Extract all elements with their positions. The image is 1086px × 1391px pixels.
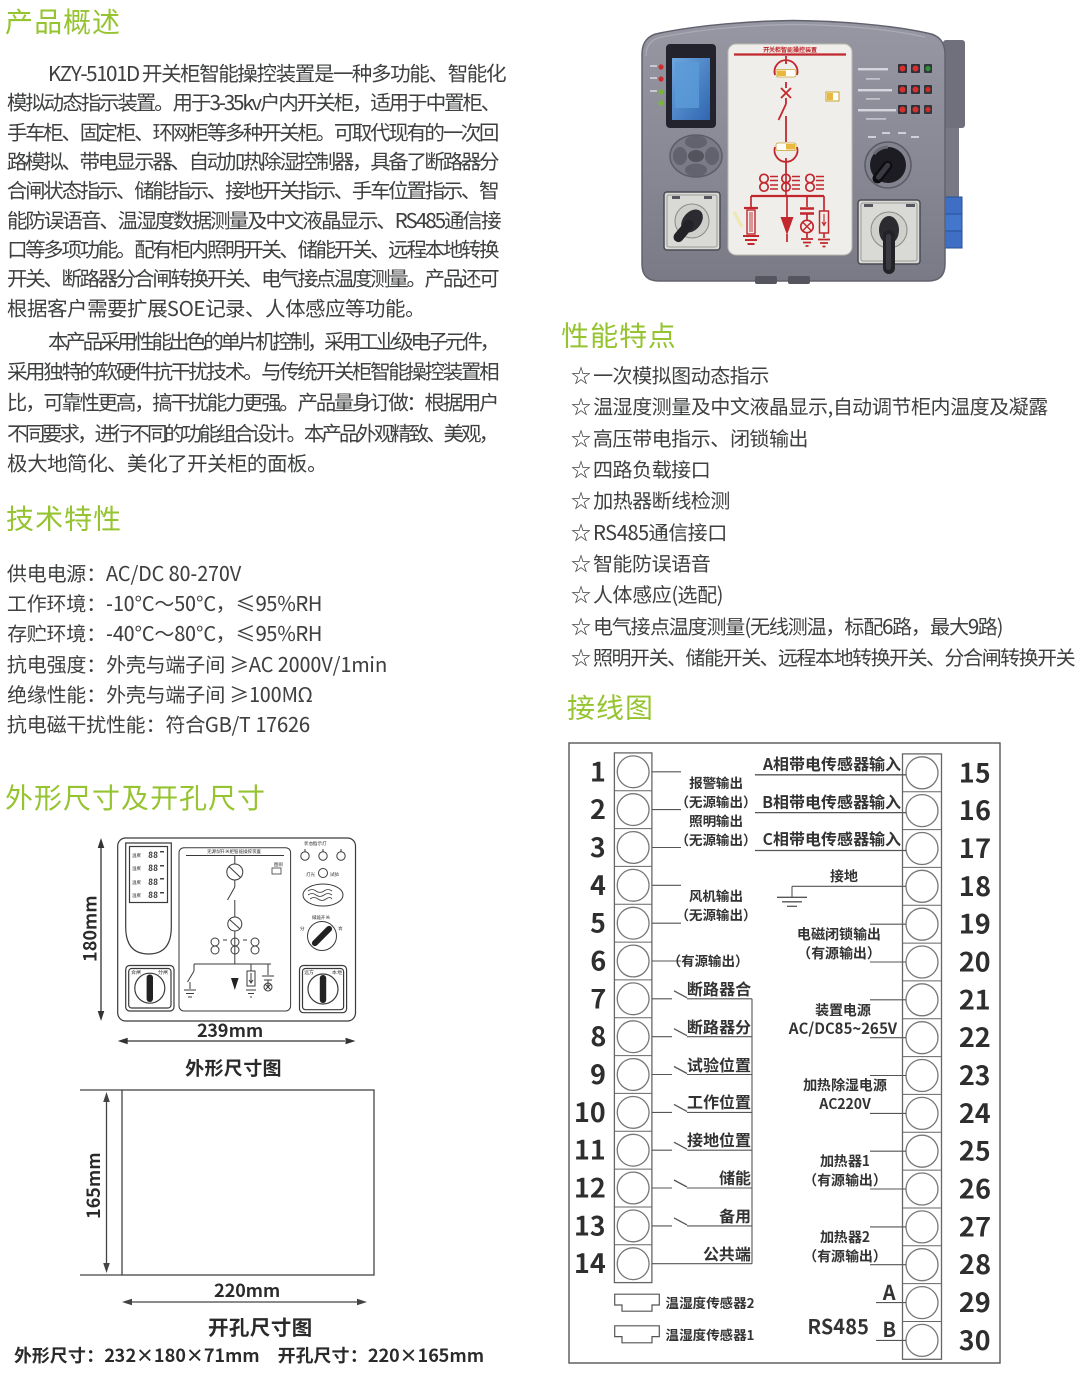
svg-text:1: 1 [590,750,606,789]
svg-text:5: 5 [590,902,606,941]
svg-text:220mm: 220mm [214,1277,281,1303]
svg-text:23: 23 [959,1054,991,1093]
svg-text:AC220V: AC220V [818,1094,871,1114]
svg-text:28: 28 [959,1243,991,1282]
svg-text:A相带电传感器输入: A相带电传感器输入 [762,751,901,775]
svg-text:灯光: 灯光 [306,871,315,878]
svg-text:29: 29 [959,1281,991,1320]
svg-text:22: 22 [959,1016,991,1055]
svg-text:A: A [883,1277,896,1306]
svg-text:温度: 温度 [132,879,141,886]
svg-text:21: 21 [959,978,991,1017]
svg-text:无源型开关柜智能操控装置: 无源型开关柜智能操控装置 [207,848,261,855]
svg-text:接地: 接地 [830,866,858,886]
svg-text:88: 88 [148,876,158,888]
svg-text:试验位置: 试验位置 [687,1052,751,1076]
svg-text:7: 7 [590,977,606,1016]
svg-text:18: 18 [959,865,991,904]
svg-text:RS485: RS485 [807,1311,869,1340]
svg-text:27: 27 [959,1205,991,1244]
svg-text:25: 25 [959,1130,991,1169]
svg-text:15: 15 [959,751,991,790]
svg-text:11: 11 [574,1129,606,1168]
svg-text:储能: 储能 [719,1165,751,1189]
svg-text:报警输出: 报警输出 [689,772,743,792]
svg-text:（无源输出）: （无源输出） [676,829,757,849]
svg-text:88: 88 [148,889,158,901]
svg-text:19: 19 [959,903,991,942]
svg-text:88: 88 [148,849,158,861]
svg-text:温湿度传感器2: 温湿度传感器2 [666,1292,755,1312]
svg-text:状态指示灯: 状态指示灯 [304,840,327,847]
svg-text:12: 12 [574,1167,606,1206]
svg-text:工作位置: 工作位置 [687,1089,751,1113]
svg-text:开关柜智能操控装置: 开关柜智能操控装置 [763,45,817,54]
svg-text:165mm: 165mm [80,1152,106,1219]
svg-text:分闸: 分闸 [158,969,168,976]
svg-text:30: 30 [959,1319,991,1358]
svg-text:239mm: 239mm [197,1017,264,1043]
svg-text:远方: 远方 [304,969,314,976]
svg-text:88: 88 [148,862,158,874]
svg-text:断路器合: 断路器合 [687,976,751,1000]
svg-text:6: 6 [590,940,606,979]
svg-text:温度: 温度 [132,852,141,859]
svg-text:24: 24 [959,1092,991,1131]
svg-text:接地位置: 接地位置 [687,1127,751,1151]
svg-text:（有源输出）: （有源输出） [668,950,749,970]
svg-text:（有源输出）: （有源输出） [797,943,881,963]
svg-text:3: 3 [590,826,606,865]
svg-text:180mm: 180mm [78,895,103,962]
svg-text:备用: 备用 [718,1203,751,1227]
svg-text:AC/DC85~265V: AC/DC85~265V [788,1018,898,1039]
svg-text:C相带电传感器输入: C相带电传感器输入 [763,826,902,850]
svg-text:图例: 图例 [274,861,283,868]
svg-text:（无源输出）: （无源输出） [676,904,757,924]
svg-text:9: 9 [590,1053,606,1092]
svg-text:（有源输出）: （有源输出） [803,1170,887,1190]
svg-text:13: 13 [574,1204,606,1243]
svg-text:（有源输出）: （有源输出） [803,1246,887,1266]
svg-text:26: 26 [959,1168,991,1207]
svg-text:14: 14 [574,1242,606,1281]
svg-text:试验: 试验 [329,871,339,878]
svg-text:分: 分 [300,926,305,932]
svg-text:加热器2: 加热器2 [820,1227,870,1247]
svg-text:（无源输出）: （无源输出） [676,791,757,811]
svg-text:本地: 本地 [332,969,343,976]
svg-text:加热器1: 加热器1 [820,1151,870,1171]
svg-text:湿度: 湿度 [132,865,141,872]
svg-text:风机输出: 风机输出 [689,885,743,905]
svg-text:湿度: 湿度 [132,892,141,899]
svg-text:断路器分: 断路器分 [687,1014,751,1038]
svg-text:17: 17 [959,827,991,866]
svg-text:10: 10 [574,1091,606,1130]
svg-text:2: 2 [590,788,606,827]
svg-text:储能开关: 储能开关 [311,914,330,921]
svg-text:B: B [882,1314,896,1343]
svg-text:合闸: 合闸 [131,969,141,976]
svg-text:4: 4 [590,864,606,903]
svg-text:装置电源: 装置电源 [815,1000,871,1020]
svg-text:加热除湿电源: 加热除湿电源 [803,1075,887,1095]
svg-text:合: 合 [338,925,343,932]
svg-text:公共端: 公共端 [703,1241,751,1265]
svg-text:照明输出: 照明输出 [689,810,743,830]
svg-text:16: 16 [959,789,991,828]
svg-text:B相带电传感器输入: B相带电传感器输入 [762,789,901,813]
svg-text:电磁闭锁输出: 电磁闭锁输出 [797,924,881,944]
svg-text:温湿度传感器1: 温湿度传感器1 [666,1324,755,1344]
svg-text:20: 20 [959,941,991,980]
svg-text:8: 8 [590,1015,606,1054]
